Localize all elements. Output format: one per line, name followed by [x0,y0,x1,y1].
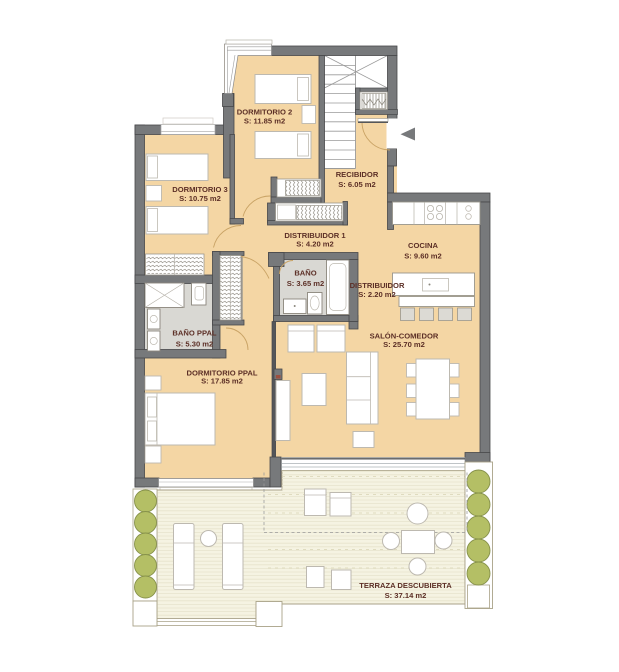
svg-text:S: 37.14 m2: S: 37.14 m2 [385,591,427,600]
svg-text:COCINA: COCINA [408,241,438,250]
svg-text:RECIBIDOR: RECIBIDOR [336,170,379,179]
svg-text:S: 4.20 m2: S: 4.20 m2 [296,240,334,249]
svg-text:S: 3.65 m2: S: 3.65 m2 [287,279,325,288]
svg-text:S: 5.30 m2: S: 5.30 m2 [176,340,214,349]
svg-text:S: 2.20 m2: S: 2.20 m2 [358,290,396,299]
svg-text:DISTRIBUIDOR: DISTRIBUIDOR [350,281,405,290]
svg-text:S: 17.85 m2: S: 17.85 m2 [201,377,243,386]
svg-text:S: 9.60 m2: S: 9.60 m2 [404,252,442,261]
svg-text:S: 25.70 m2: S: 25.70 m2 [383,340,425,349]
svg-text:S: 11.85 m2: S: 11.85 m2 [244,117,285,126]
svg-text:TERRAZA DESCUBIERTA: TERRAZA DESCUBIERTA [359,581,452,590]
svg-text:BAÑO PPAL: BAÑO PPAL [172,329,217,338]
svg-text:S: 6.05 m2: S: 6.05 m2 [338,180,376,189]
svg-text:DORMITORIO 2: DORMITORIO 2 [237,108,293,117]
svg-text:DORMITORIO 3: DORMITORIO 3 [172,185,228,194]
svg-text:BAÑO: BAÑO [294,269,316,278]
svg-text:S: 10.75 m2: S: 10.75 m2 [179,194,221,203]
